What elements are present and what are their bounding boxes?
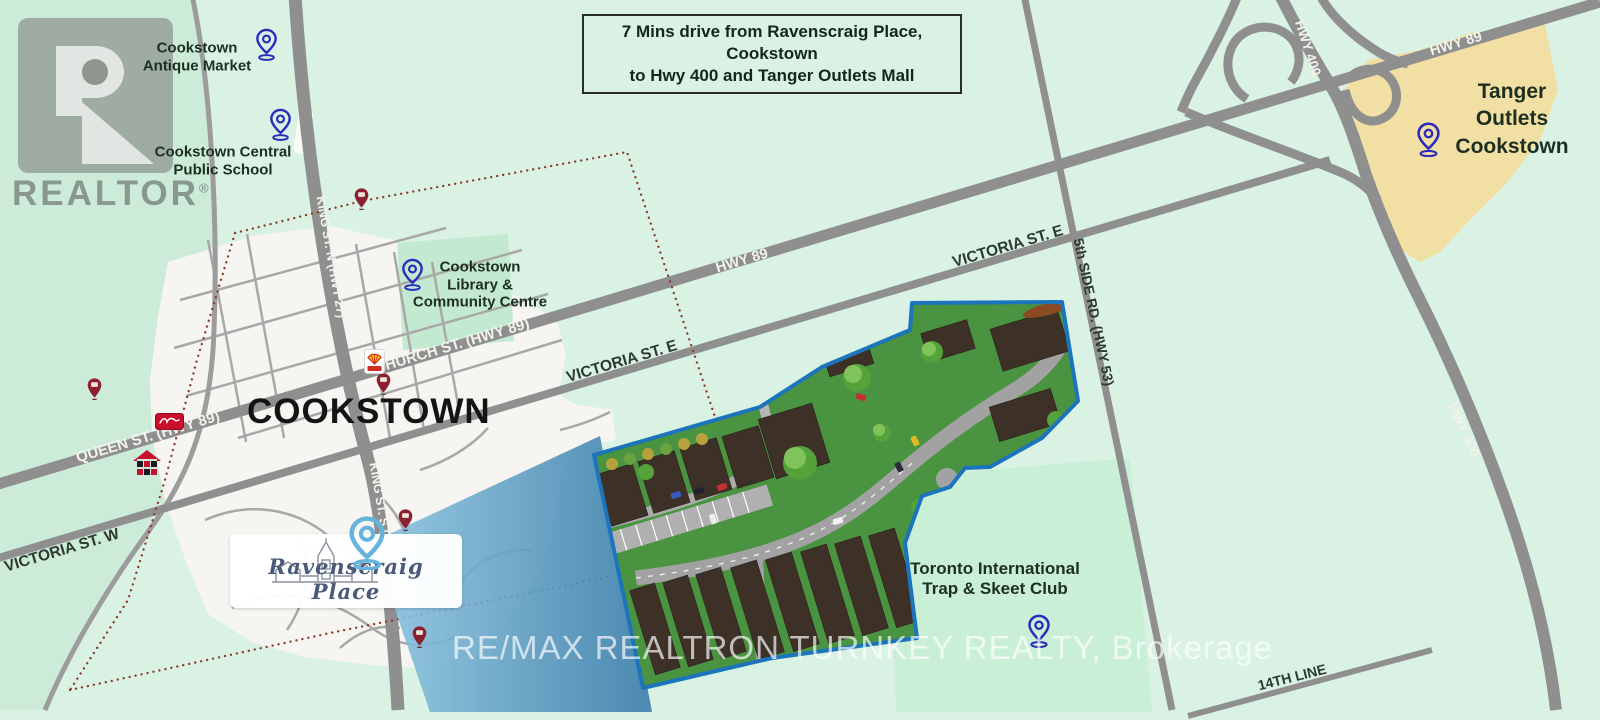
poi-tanger-label: Tanger Outlets Cookstown xyxy=(1455,78,1568,160)
poi-text: Cookstown xyxy=(413,258,547,276)
poi-text: Antique Market xyxy=(143,57,251,75)
tim-hortons-sign xyxy=(155,413,184,435)
tanger-pin-icon xyxy=(1415,122,1442,162)
poi-public-school-label: Cookstown Central Public School xyxy=(155,143,292,178)
map-pin-red-4 xyxy=(397,508,414,537)
drive-time-info-box: 7 Mins drive from Ravenscraig Place, Coo… xyxy=(582,14,962,94)
map-pin-red-5 xyxy=(411,625,428,654)
map-pin-red-2 xyxy=(353,187,370,216)
public-school-pin-icon xyxy=(268,108,293,146)
poi-text: Community Centre xyxy=(413,294,547,312)
poi-text: Library & xyxy=(413,276,547,294)
poi-library-label: Cookstown Library & Community Centre xyxy=(413,258,547,311)
registered-mark: ® xyxy=(199,180,212,195)
info-line-1: 7 Mins drive from Ravenscraig Place, Coo… xyxy=(594,21,950,65)
realtor-wordmark: REALTOR® xyxy=(12,174,212,214)
realtor-logo-watermark: REALTOR® xyxy=(6,6,206,221)
home-hardware-icon xyxy=(132,449,162,483)
antique-market-pin-icon xyxy=(254,28,279,66)
poi-text: Cookstown xyxy=(1455,133,1568,160)
poi-text: Toronto International xyxy=(910,559,1080,579)
poi-antique-market-label: Cookstown Antique Market xyxy=(143,39,251,74)
brokerage-watermark: RE/MAX REALTRON TURNKEY REALTY, Brokerag… xyxy=(452,629,1273,667)
poi-text: Tanger Outlets xyxy=(1455,78,1568,133)
city-label-cookstown: COOKSTOWN xyxy=(247,392,471,432)
poi-trap-skeet-label: Toronto International Trap & Skeet Club xyxy=(910,559,1080,599)
poi-text: Public School xyxy=(155,161,292,179)
map-base-graphics xyxy=(0,0,1600,720)
library-pin-icon xyxy=(400,258,425,296)
map-canvas: REALTOR® 7 Mins drive from Ravenscraig P… xyxy=(0,0,1600,720)
info-line-2: to Hwy 400 and Tanger Outlets Mall xyxy=(594,65,950,87)
ravenscraig-pin-icon xyxy=(346,516,388,575)
shell-station-icon xyxy=(364,349,385,379)
poi-text: Trap & Skeet Club xyxy=(910,579,1080,599)
poi-text: Cookstown xyxy=(143,39,251,57)
map-pin-red-1 xyxy=(86,377,103,406)
